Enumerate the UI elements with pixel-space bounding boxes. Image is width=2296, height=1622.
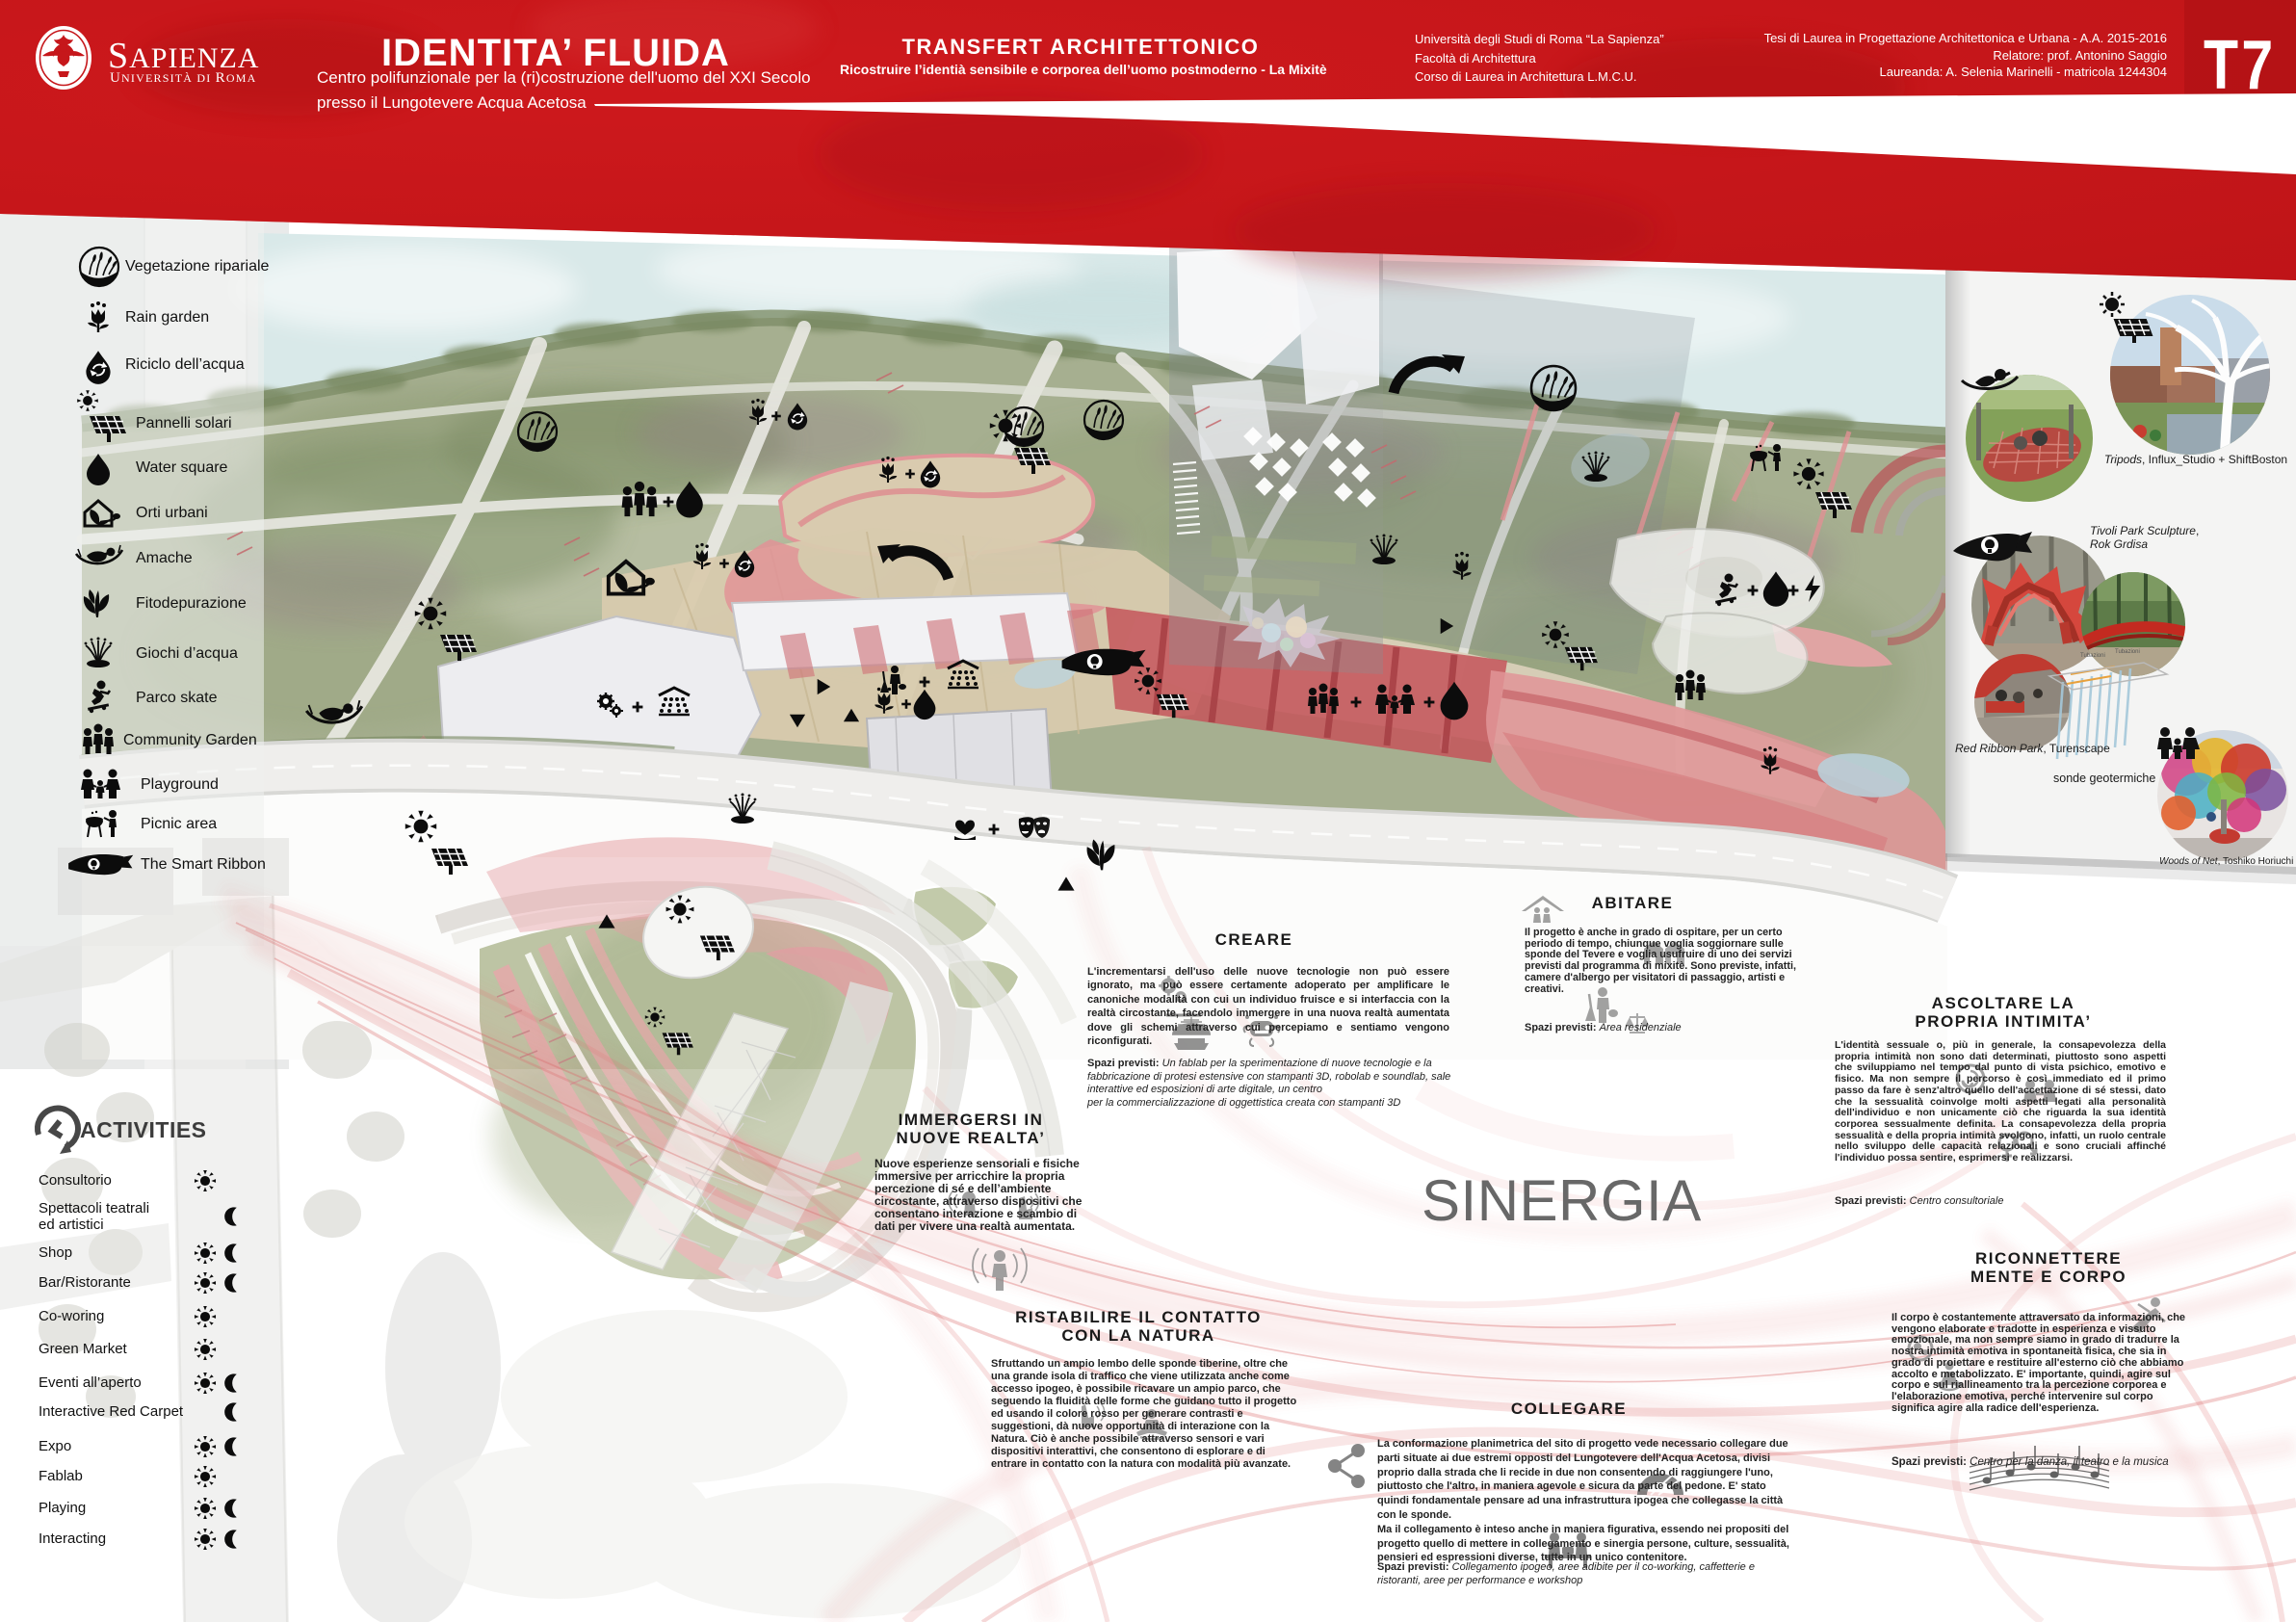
svg-text:Tubazioni: Tubazioni bbox=[2080, 653, 2105, 659]
svg-text:Tubazioni: Tubazioni bbox=[2115, 649, 2140, 655]
